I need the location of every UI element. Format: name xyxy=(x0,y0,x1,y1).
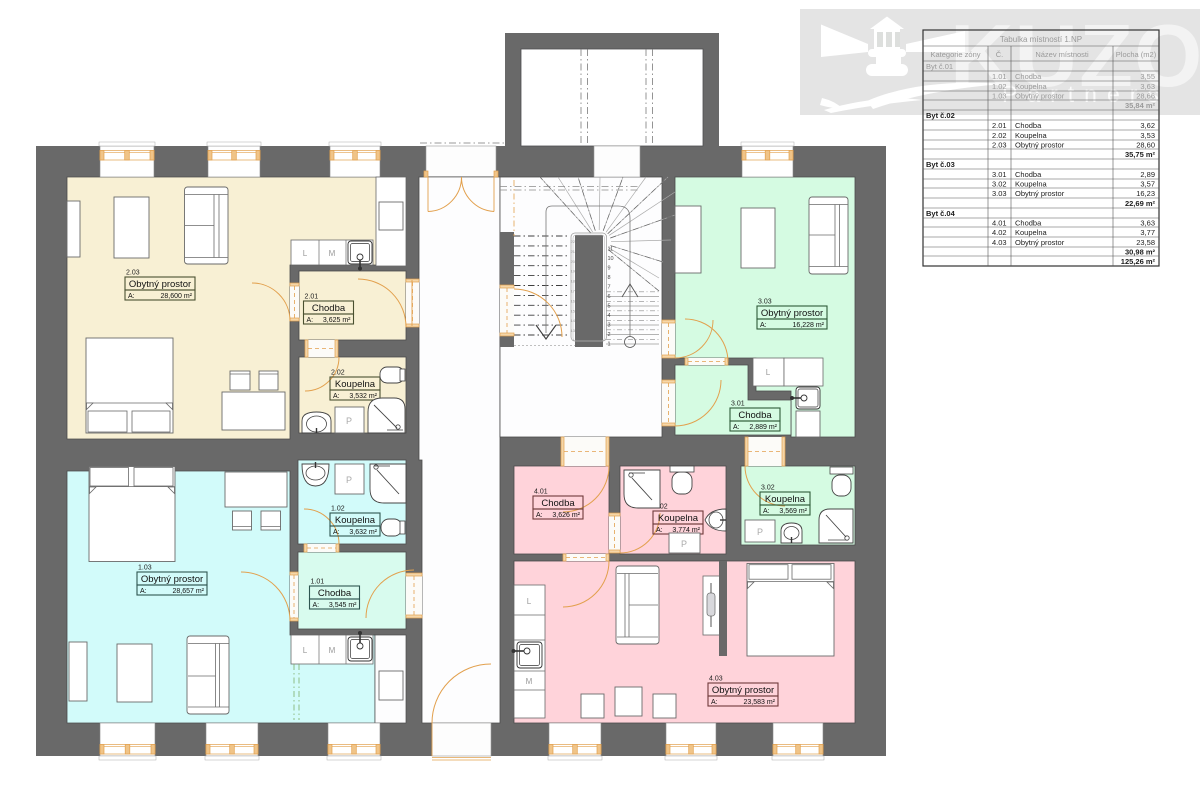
svg-text:M: M xyxy=(329,646,336,655)
svg-text:Plocha (m2): Plocha (m2) xyxy=(1116,50,1157,59)
svg-text:2.03: 2.03 xyxy=(992,141,1007,150)
svg-text:3,62: 3,62 xyxy=(1140,121,1155,130)
svg-text:A:: A: xyxy=(307,317,314,324)
svg-text:A:: A: xyxy=(760,322,767,329)
svg-text:Obytný prostor: Obytný prostor xyxy=(141,574,203,585)
svg-text:19: 19 xyxy=(571,269,576,274)
svg-text:3: 3 xyxy=(608,323,611,329)
svg-text:3.03: 3.03 xyxy=(758,299,772,306)
svg-text:L: L xyxy=(303,646,308,655)
svg-text:2.01: 2.01 xyxy=(992,121,1007,130)
svg-text:5: 5 xyxy=(608,304,611,310)
svg-text:4.02: 4.02 xyxy=(992,228,1007,237)
svg-text:3,57: 3,57 xyxy=(1140,180,1155,189)
svg-text:Chodba: Chodba xyxy=(1015,72,1042,81)
svg-text:M: M xyxy=(329,249,336,258)
svg-text:22: 22 xyxy=(571,239,576,244)
svg-text:A:: A: xyxy=(733,424,740,431)
svg-text:A:: A: xyxy=(333,529,340,536)
svg-text:Obytný prostor: Obytný prostor xyxy=(712,685,774,696)
svg-text:A:: A: xyxy=(313,602,320,609)
svg-text:3,545 m²: 3,545 m² xyxy=(329,602,357,609)
svg-text:Obytný prostor: Obytný prostor xyxy=(1015,238,1065,247)
svg-text:1: 1 xyxy=(608,342,611,348)
svg-text:3,53: 3,53 xyxy=(1140,131,1155,140)
svg-text:A:: A: xyxy=(333,393,340,400)
svg-text:4.01: 4.01 xyxy=(992,219,1007,228)
svg-text:1.03: 1.03 xyxy=(992,92,1007,101)
svg-text:A:: A: xyxy=(711,699,718,706)
svg-text:20: 20 xyxy=(571,259,576,264)
svg-text:Chodba: Chodba xyxy=(318,588,352,599)
svg-text:14: 14 xyxy=(571,318,576,323)
svg-text:Koupelna: Koupelna xyxy=(1015,228,1048,237)
svg-text:L: L xyxy=(527,597,532,606)
svg-text:3,625 m²: 3,625 m² xyxy=(323,317,351,324)
svg-text:Byt č.03: Byt č.03 xyxy=(926,160,955,169)
svg-text:23,583 m²: 23,583 m² xyxy=(743,699,775,706)
svg-text:Chodba: Chodba xyxy=(738,410,772,421)
svg-text:Koupelna: Koupelna xyxy=(1015,180,1048,189)
svg-text:1.02: 1.02 xyxy=(331,506,345,513)
svg-text:L: L xyxy=(303,249,308,258)
svg-text:2.02: 2.02 xyxy=(331,370,345,377)
svg-text:3,532 m²: 3,532 m² xyxy=(349,393,377,400)
svg-text:Chodba: Chodba xyxy=(1015,219,1042,228)
svg-text:3.01: 3.01 xyxy=(731,401,745,408)
svg-text:Koupelna: Koupelna xyxy=(335,379,376,390)
svg-text:35,75 m²: 35,75 m² xyxy=(1125,150,1156,159)
svg-text:Obytný prostor: Obytný prostor xyxy=(1015,189,1065,198)
svg-text:4.03: 4.03 xyxy=(992,238,1007,247)
svg-text:Byt č.04: Byt č.04 xyxy=(926,209,956,218)
svg-text:16,23: 16,23 xyxy=(1136,189,1155,198)
svg-text:M: M xyxy=(526,677,533,686)
svg-text:Koupelna: Koupelna xyxy=(765,494,806,505)
svg-text:11: 11 xyxy=(608,247,614,253)
svg-text:Koupelna: Koupelna xyxy=(1015,131,1048,140)
svg-text:3,626 m²: 3,626 m² xyxy=(552,512,580,519)
svg-text:3,77: 3,77 xyxy=(1140,228,1155,237)
svg-text:Chodba: Chodba xyxy=(541,498,575,509)
svg-text:4.03: 4.03 xyxy=(709,676,723,683)
svg-text:2: 2 xyxy=(608,332,611,338)
svg-text:A:: A: xyxy=(763,508,770,515)
svg-text:A:: A: xyxy=(140,588,147,595)
svg-text:1.01: 1.01 xyxy=(992,72,1007,81)
svg-text:28,66: 28,66 xyxy=(1136,92,1155,101)
svg-text:2.03: 2.03 xyxy=(126,270,140,277)
svg-text:125,26 m²: 125,26 m² xyxy=(1121,257,1156,266)
svg-text:3,632 m²: 3,632 m² xyxy=(349,529,377,536)
svg-text:1.01: 1.01 xyxy=(311,579,325,586)
svg-text:35,84 m²: 35,84 m² xyxy=(1125,101,1156,110)
svg-text:A:: A: xyxy=(656,527,663,534)
svg-text:P: P xyxy=(346,475,352,485)
svg-text:6: 6 xyxy=(608,294,611,300)
svg-text:1.03: 1.03 xyxy=(138,565,152,572)
svg-text:21: 21 xyxy=(571,249,576,254)
svg-text:2.02: 2.02 xyxy=(992,131,1007,140)
svg-text:17: 17 xyxy=(571,289,576,294)
svg-text:3,63: 3,63 xyxy=(1140,219,1155,228)
svg-text:Obytný prostor: Obytný prostor xyxy=(761,308,823,319)
svg-text:2,889 m²: 2,889 m² xyxy=(749,424,777,431)
svg-text:1.02: 1.02 xyxy=(992,82,1007,91)
svg-text:Koupelna: Koupelna xyxy=(1015,82,1048,91)
svg-text:9: 9 xyxy=(608,266,611,272)
svg-text:3,55: 3,55 xyxy=(1140,72,1155,81)
svg-text:13: 13 xyxy=(571,328,576,333)
svg-text:28,600 m²: 28,600 m² xyxy=(160,293,192,300)
svg-text:4: 4 xyxy=(608,313,611,319)
svg-text:A:: A: xyxy=(128,293,135,300)
svg-text:Koupelna: Koupelna xyxy=(335,515,376,526)
svg-text:L: L xyxy=(766,368,771,377)
svg-text:3.03: 3.03 xyxy=(992,189,1007,198)
svg-text:7: 7 xyxy=(608,285,611,291)
svg-text:Tabulka místností 1.NP: Tabulka místností 1.NP xyxy=(1000,35,1082,44)
svg-text:2,89: 2,89 xyxy=(1140,170,1155,179)
svg-text:Chodba: Chodba xyxy=(312,303,346,314)
svg-text:Název místnosti: Název místnosti xyxy=(1035,50,1089,59)
svg-text:23,58: 23,58 xyxy=(1136,238,1155,247)
svg-text:P: P xyxy=(681,539,687,549)
svg-text:P: P xyxy=(346,416,352,426)
svg-text:Obytný prostor: Obytný prostor xyxy=(1015,92,1065,101)
svg-text:Byt č.01: Byt č.01 xyxy=(926,62,953,71)
svg-text:Chodba: Chodba xyxy=(1015,170,1042,179)
svg-text:22,69 m²: 22,69 m² xyxy=(1125,199,1156,208)
svg-text:15: 15 xyxy=(571,308,576,313)
svg-text:3.02: 3.02 xyxy=(761,485,775,492)
svg-text:Kategorie zóny: Kategorie zóny xyxy=(930,50,980,59)
svg-text:P: P xyxy=(757,527,763,537)
svg-text:10: 10 xyxy=(608,256,614,262)
svg-text:A:: A: xyxy=(536,512,543,519)
svg-text:2.01: 2.01 xyxy=(305,294,319,301)
svg-text:8: 8 xyxy=(608,275,611,281)
svg-text:3,63: 3,63 xyxy=(1140,82,1155,91)
svg-text:Obytný prostor: Obytný prostor xyxy=(1015,141,1065,150)
svg-text:3.01: 3.01 xyxy=(992,170,1007,179)
svg-text:3,569 m²: 3,569 m² xyxy=(779,508,807,515)
svg-text:28,657 m²: 28,657 m² xyxy=(172,588,204,595)
svg-text:30,98 m²: 30,98 m² xyxy=(1125,248,1156,257)
svg-text:4.01: 4.01 xyxy=(534,489,548,496)
svg-text:Chodba: Chodba xyxy=(1015,121,1042,130)
svg-text:Č.: Č. xyxy=(996,50,1004,59)
svg-text:28,60: 28,60 xyxy=(1136,141,1155,150)
svg-text:18: 18 xyxy=(571,279,576,284)
svg-text:3.02: 3.02 xyxy=(992,180,1007,189)
svg-text:Koupelna: Koupelna xyxy=(658,513,699,524)
svg-text:Obytný prostor: Obytný prostor xyxy=(129,279,191,290)
svg-text:16,228 m²: 16,228 m² xyxy=(792,322,824,329)
svg-text:16: 16 xyxy=(571,298,576,303)
svg-text:Byt č.02: Byt č.02 xyxy=(926,111,955,120)
